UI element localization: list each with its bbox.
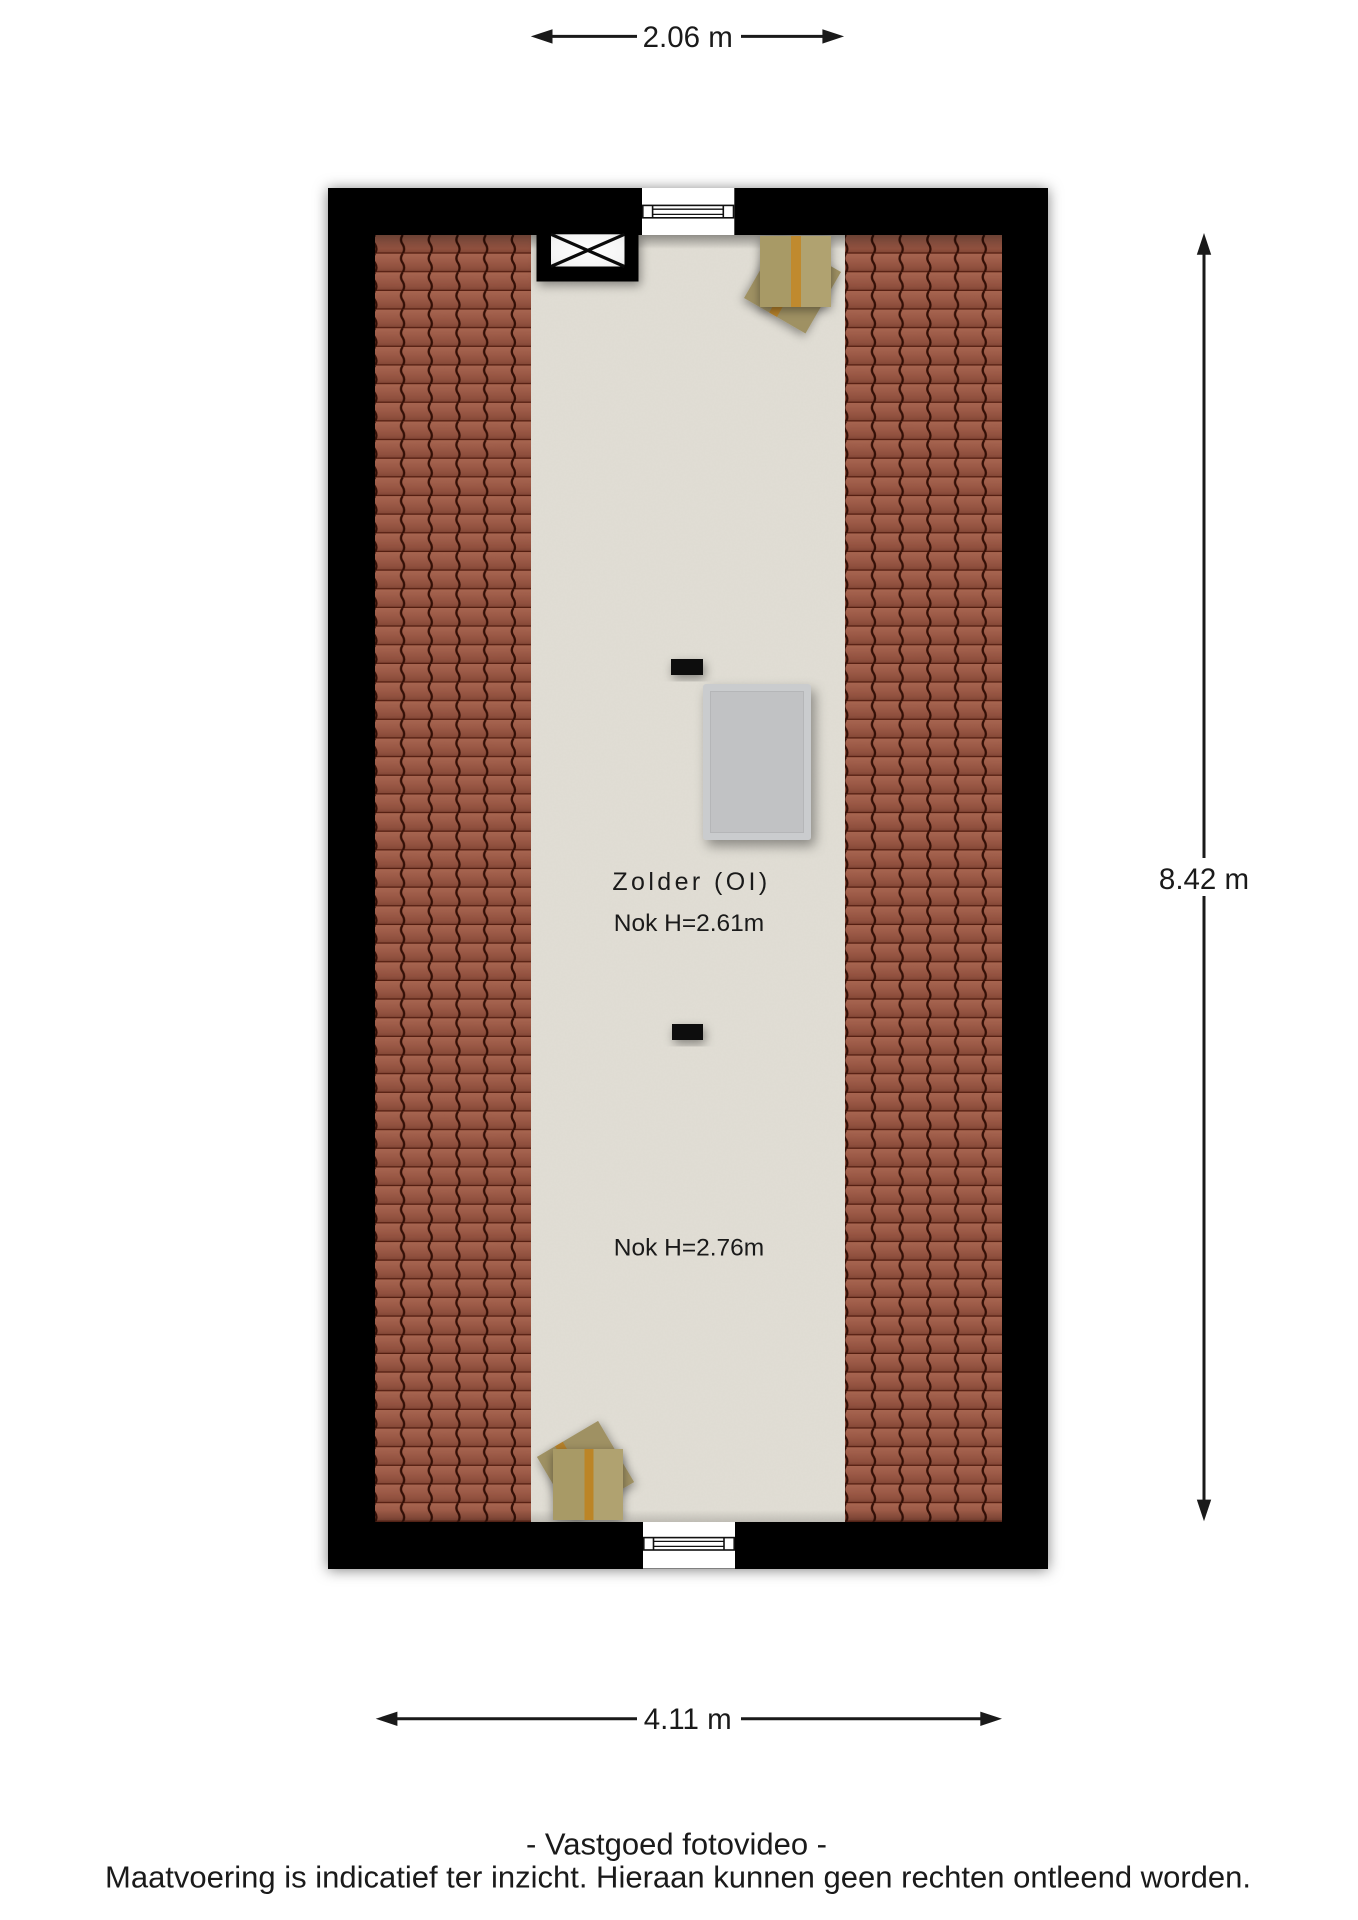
svg-text:Maatvoering is indicatief ter: Maatvoering is indicatief ter inzicht. H…: [105, 1860, 1251, 1895]
svg-text:2.06 m: 2.06 m: [643, 21, 733, 54]
svg-text:8.42 m: 8.42 m: [1159, 863, 1249, 896]
svg-text:Zolder (OI): Zolder (OI): [612, 868, 770, 896]
svg-text:Nok H=2.61m: Nok H=2.61m: [614, 910, 764, 937]
svg-text:4.11 m: 4.11 m: [644, 1703, 732, 1736]
svg-text:- Vastgoed fotovideo -: - Vastgoed fotovideo -: [526, 1827, 827, 1862]
svg-text:Nok H=2.76m: Nok H=2.76m: [614, 1235, 764, 1262]
